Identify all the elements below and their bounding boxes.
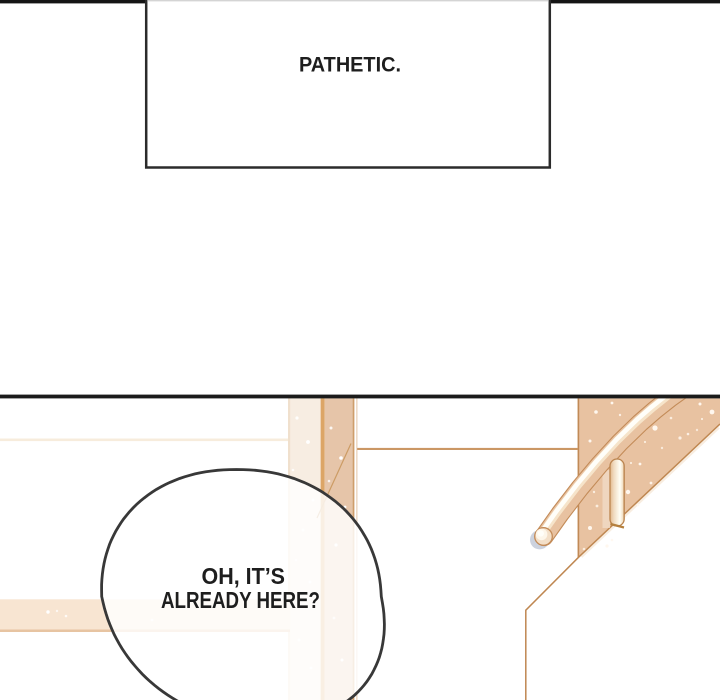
svg-text:PATHETIC.: PATHETIC. <box>299 53 401 77</box>
svg-text:OH, IT’S: OH, IT’S <box>202 563 286 589</box>
svg-text:ALREADY HERE?: ALREADY HERE? <box>161 587 320 613</box>
